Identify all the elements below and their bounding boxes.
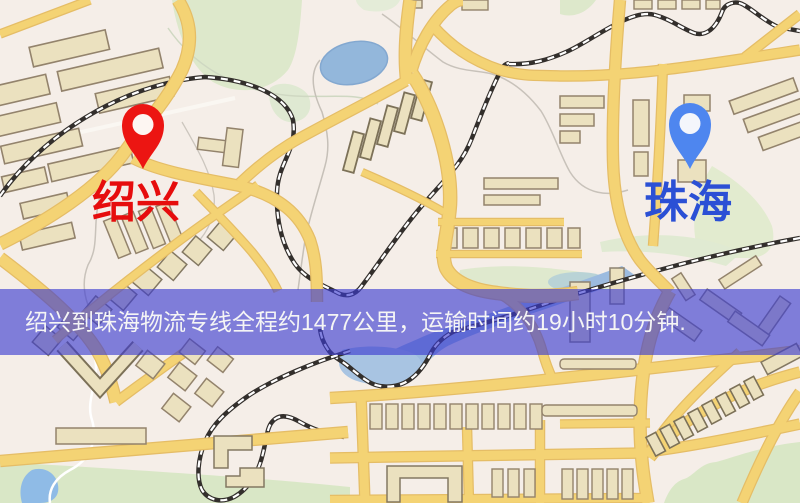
svg-text:珠海: 珠海 bbox=[644, 178, 732, 227]
svg-text:绍兴到珠海物流专线全程约1477公里，运输时间约19小时10: 绍兴到珠海物流专线全程约1477公里，运输时间约19小时10分钟. bbox=[25, 309, 686, 335]
svg-text:绍兴: 绍兴 bbox=[92, 178, 180, 227]
